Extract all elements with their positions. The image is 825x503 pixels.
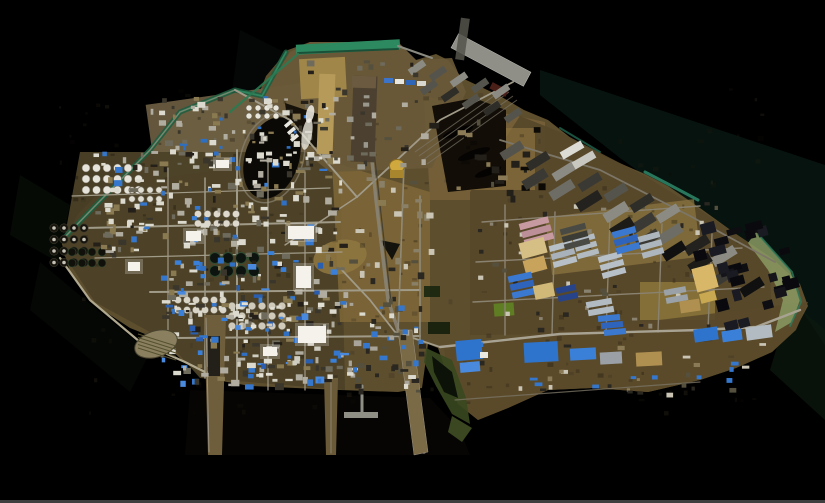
factory-tan (636, 351, 663, 366)
bright-plant-building (293, 263, 314, 291)
bright-plant-building (213, 157, 232, 171)
bright-plant-building (295, 323, 329, 346)
factory-blue-big (455, 339, 483, 361)
gold-tank-base (390, 170, 404, 178)
wharf-strip-dark (351, 76, 378, 163)
bright-plant-building (183, 228, 204, 244)
pond-1 (424, 286, 440, 297)
factory-white-annex (480, 352, 488, 358)
factory-blue (523, 341, 558, 363)
bright-plant-building (125, 259, 143, 274)
satellite-image-industrial-island (0, 0, 825, 503)
bright-plant-building (285, 223, 317, 242)
pond-2 (428, 322, 450, 334)
t-dock-bar (344, 412, 378, 418)
bright-plant-building (260, 344, 280, 359)
wharf-strip-top (352, 76, 376, 89)
factory-blue-big-annex (460, 361, 481, 373)
screenshot-root (0, 0, 825, 503)
green-field (494, 302, 515, 316)
factory-grey (600, 351, 623, 364)
factory-blue (570, 347, 597, 360)
